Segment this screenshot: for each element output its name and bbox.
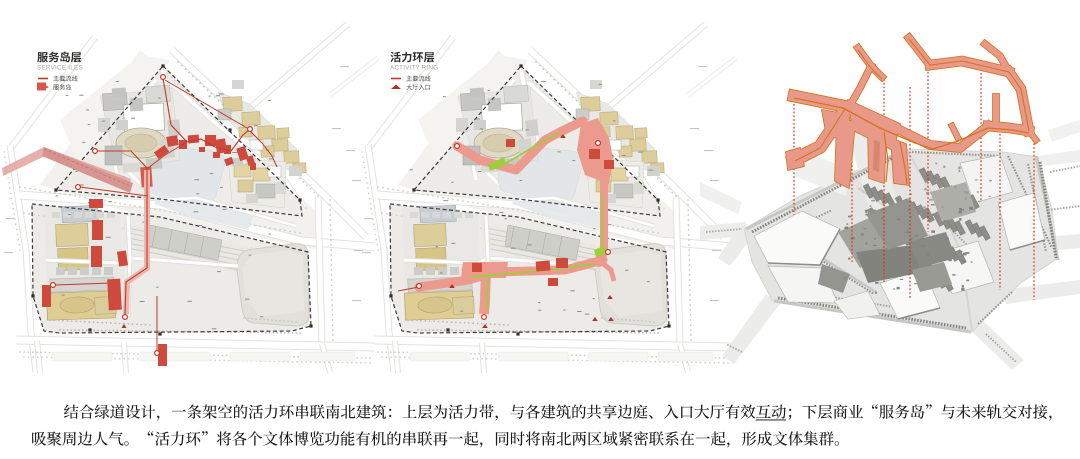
svg-text:SERVICE ILES: SERVICE ILES (37, 65, 83, 72)
svg-text:ACTIVITY RING: ACTIVITY RING (390, 65, 438, 72)
